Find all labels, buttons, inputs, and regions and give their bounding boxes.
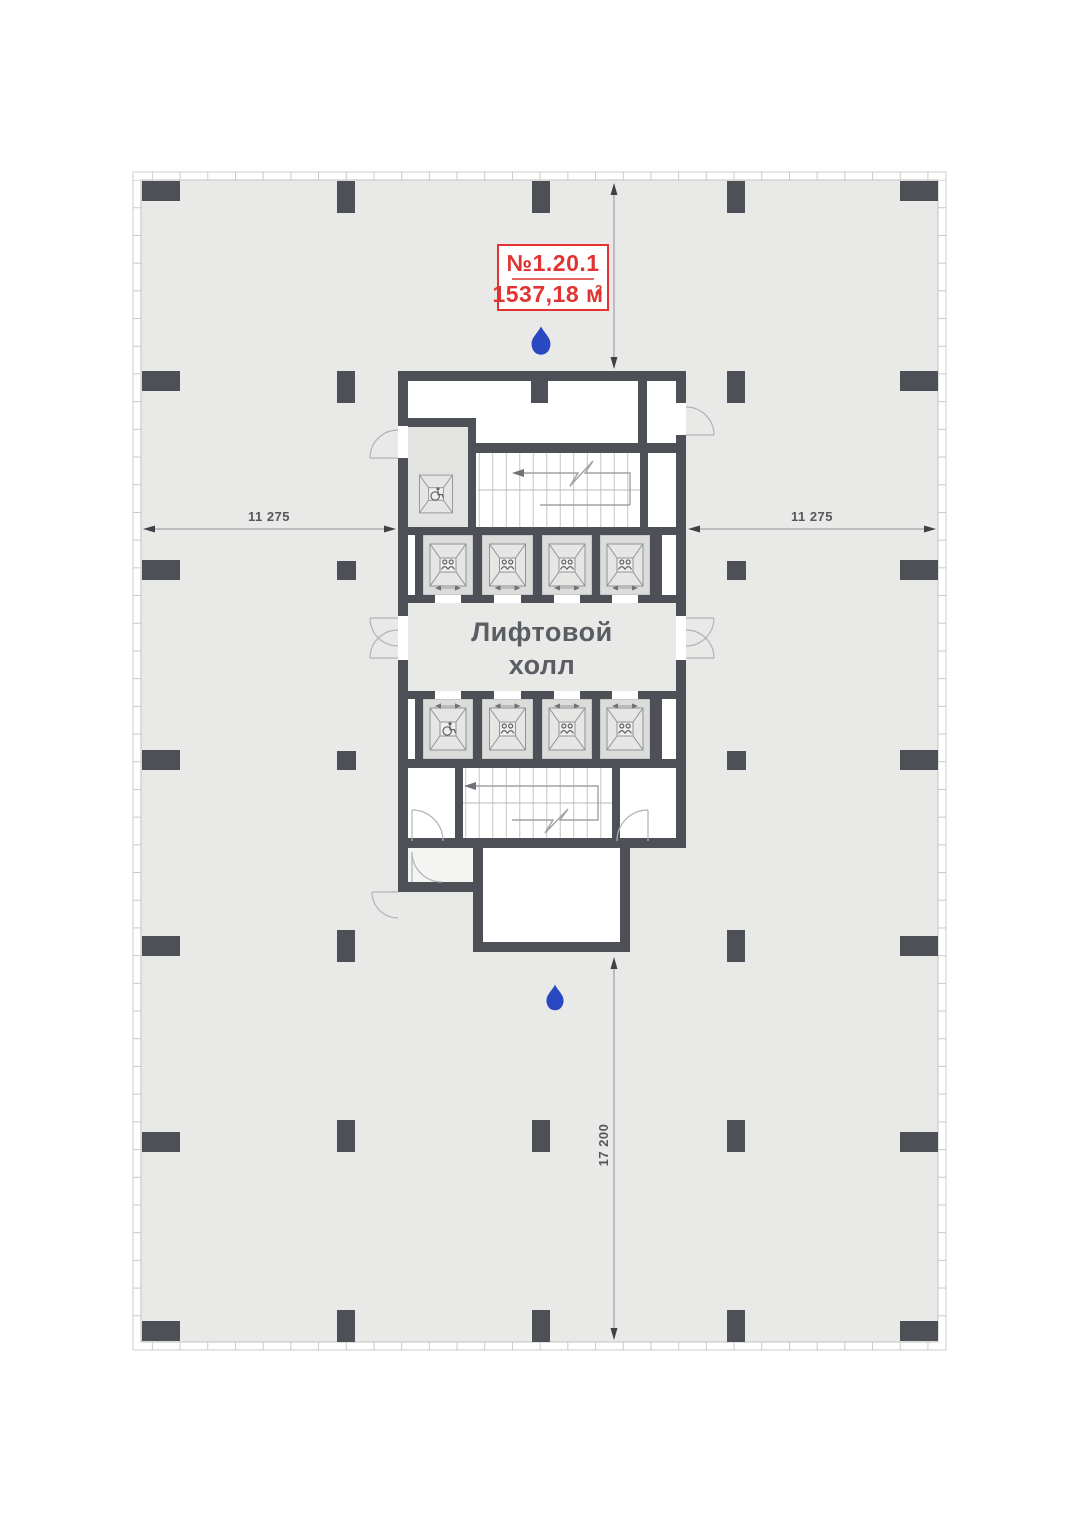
elevator-car: [430, 544, 466, 586]
elevator-car: [490, 544, 526, 586]
structural-column: [727, 751, 746, 770]
elevator-car: [607, 544, 643, 586]
structural-column: [337, 181, 355, 213]
dimension-value: 11 275: [248, 509, 290, 524]
structural-column: [337, 751, 356, 770]
dimension-value: 17 200: [596, 1124, 611, 1167]
structural-column: [142, 1132, 180, 1152]
structural-column: [142, 936, 180, 956]
floor-plan-svg: Лифтовой холл 8 400 17 200 11 275: [0, 0, 1086, 1536]
accessible-lift: [419, 475, 452, 513]
structural-column: [727, 1120, 745, 1152]
structural-column: [337, 561, 356, 580]
structural-column: [727, 181, 745, 213]
structural-column: [727, 371, 745, 403]
elevator-car: [419, 475, 452, 513]
structural-column: [337, 930, 355, 962]
core-bottom-corridor: [408, 848, 473, 882]
structural-column: [727, 561, 746, 580]
core-bottom-room: [473, 838, 630, 952]
hall-label-line1: Лифтовой: [471, 617, 613, 647]
structural-column: [337, 1310, 355, 1342]
stairwell-upper: [478, 453, 640, 527]
hall-label-line2: холл: [509, 650, 575, 680]
dimension-value: 11 275: [791, 509, 833, 524]
structural-column: [142, 371, 180, 391]
structural-column: [727, 1310, 745, 1342]
structural-column: [900, 750, 938, 770]
elevator-car: [549, 544, 585, 586]
elevator-car: [607, 708, 643, 750]
structural-column: [337, 371, 355, 403]
elevator-car: [549, 708, 585, 750]
structural-column: [900, 560, 938, 580]
elevator-car: [430, 708, 466, 750]
structural-column: [900, 371, 938, 391]
structural-column: [900, 181, 938, 201]
structural-column: [900, 1321, 938, 1341]
structural-column: [532, 181, 550, 213]
structural-column: [142, 560, 180, 580]
structural-column: [532, 1120, 550, 1152]
structural-column: [337, 1120, 355, 1152]
unit-area-sup: 2: [595, 282, 602, 297]
structural-column: [900, 936, 938, 956]
stairwell-lower: [463, 768, 612, 838]
structural-column: [142, 1321, 180, 1341]
unit-label[interactable]: №1.20.1 1537,18 м 2: [492, 245, 608, 310]
unit-number: №1.20.1: [506, 250, 599, 276]
unit-area: 1537,18 м: [492, 281, 603, 307]
structural-column: [142, 750, 180, 770]
structural-column: [727, 930, 745, 962]
structural-column: [532, 1310, 550, 1342]
elevator-car: [490, 708, 526, 750]
structural-column: [900, 1132, 938, 1152]
structural-column: [142, 181, 180, 201]
floor-plan-canvas: Лифтовой холл 8 400 17 200 11 275: [0, 0, 1086, 1536]
